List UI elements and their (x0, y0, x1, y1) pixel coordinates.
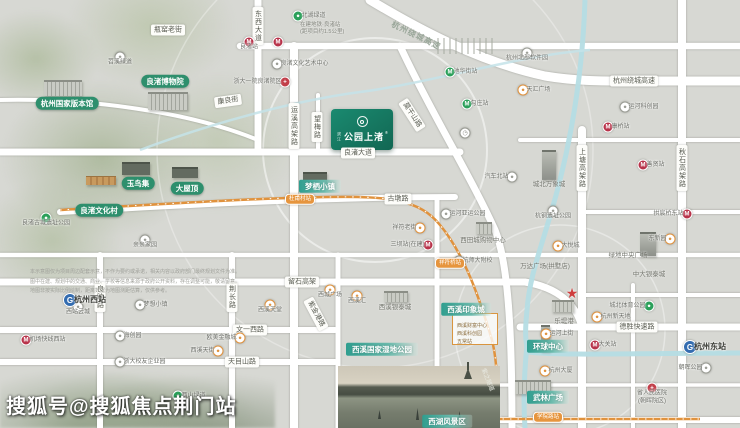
poi-label: 东新园 (648, 235, 666, 243)
poi-label: 康桥站 (612, 123, 630, 131)
poi-label: 梦想小镇 (144, 301, 168, 309)
location-map: 西溪财富中心西溪科创园五常站 滨江 公园上渚 ® 东西大道瓶窑老街康良街运溪高架… (0, 0, 740, 428)
poi-label: 西溪天堂 (258, 308, 282, 316)
road-label: 上塘高架路 (577, 145, 588, 191)
poi-label: 浙大一院良渚院区 (233, 78, 281, 86)
disclaimer-line: 本示意图仅为项目周边配套示意，不作为要约或承诺，相关内容以政府部门最终规划文件为… (30, 268, 240, 278)
pagoda-silhouette (464, 368, 472, 379)
highlight-box-row: 五常站 (457, 338, 494, 346)
poi-label: 大关站 (599, 341, 617, 349)
place-label-teal: 西湖风景区 (422, 415, 472, 428)
map-annotation: 在建地铁·良渚站(距项目约1.5公里) (300, 22, 344, 36)
tree-icon (378, 410, 381, 419)
poi-label: 良渚文化艺术中心 (281, 60, 329, 68)
hosp-icon: +省人民医院(朝晖院区) (647, 383, 658, 394)
park-icon: ●良渚古城遗址公园 (41, 213, 52, 224)
disclaimer-block: 本示意图仅为项目周边配套示意，不作为要约或承诺，相关内容以政府部门最终规划文件为… (30, 268, 240, 297)
project-logo-icon (357, 116, 368, 127)
poi-icon: ●朝晖公园 (701, 363, 712, 374)
place-label-green: 杭州国家版本馆 (36, 97, 99, 110)
place-label-green: 良渚博物院 (141, 75, 189, 88)
mall-icon: ●西溪天街 (213, 346, 224, 357)
building-illustration (86, 176, 116, 185)
building-label: 西溪银泰城 (379, 301, 412, 311)
poi-label: 汽车北站 (484, 173, 508, 181)
poi-label: 欧美金融城 (206, 334, 236, 342)
place-label-green: 大屋顶 (171, 182, 204, 195)
poi-label: 浙大校友企业园 (124, 358, 166, 366)
mall-icon: ●欧美金融城 (235, 333, 246, 344)
poi-icon: ●浙大校友企业园 (115, 357, 126, 368)
building-label: 乐堤港 (554, 315, 574, 325)
poi-label: 良渚站 (240, 45, 258, 53)
poi-icon: ●海创园 (115, 331, 126, 342)
project-logo-card: 滨江 公园上渚 ® (331, 109, 393, 150)
poi-label: 杭师大附校 (463, 257, 493, 265)
poi-label: 运河亚运公园 (450, 210, 486, 218)
stn-icon: M池华街站 (445, 67, 456, 78)
mall-icon: ●杭州大厦 (540, 366, 551, 377)
place-label-green: 玉鸟集 (122, 177, 155, 190)
place-label-green: 良渚文化村 (75, 204, 123, 217)
highlight-box-row: 西溪科创园 (457, 330, 494, 338)
poi-label: 西溪汇 (348, 299, 366, 307)
mall-icon: ●祥符老街 (415, 223, 426, 234)
mall-icon: ●运河上街 (541, 329, 552, 340)
poi-label: 西站云城 (66, 310, 90, 318)
stn-icon: M勾庄站 (462, 99, 473, 110)
building-illustration (542, 150, 556, 180)
mall-icon: ●西溪汇 (352, 291, 363, 302)
highlight-box-row: 西溪财富中心 (457, 322, 494, 330)
poi-icon: ●良渚文化艺术中心 (272, 59, 283, 70)
metro-icon: M机场快线西站 (21, 335, 32, 346)
poi-label: 三坝站(在建) (391, 241, 425, 249)
road-label: 瓶窑老街 (151, 25, 185, 36)
poi-label: 池华街站 (454, 68, 478, 76)
poi-icon: ●苕溪绿道 (115, 52, 126, 63)
poi-label: 亲亲家园 (133, 243, 157, 251)
watermark: 搜狐号@搜狐焦点荆门站 (6, 390, 237, 419)
building-illustration (552, 300, 574, 312)
poi-label: 运河科创园 (629, 103, 659, 111)
mall-icon: ●杭州新天地 (592, 312, 603, 323)
road-label: 德胜快速路 (617, 322, 658, 333)
poi-icon: ●梦想小镇 (135, 300, 146, 311)
clock-glyph: ◷ (460, 128, 471, 139)
poi-label: 省人民医院(朝晖院区) (637, 391, 667, 406)
mall-icon: ●西城广场 (325, 285, 336, 296)
disclaimer-line: 图中在建、规划中的交通、商业、学校等信息来源于政府公开资料，存在调整可能，敬请留… (30, 278, 240, 288)
mall-icon: ●东新园 (665, 234, 676, 245)
poi-label: 海创园 (124, 332, 142, 340)
metro-station-capsule: 杜甫村站 (285, 194, 315, 205)
poi-label: 机场快线西站 (30, 336, 66, 344)
mall-icon: ●天汇广场 (518, 85, 529, 96)
project-prefix: 滨江 (336, 132, 342, 142)
metro-station-capsule: 学院路站 (533, 412, 563, 423)
poi-label: 祥符老街 (392, 224, 416, 232)
poi-label: 杭州新天地 (601, 313, 631, 321)
building-label: 中大银泰城 (633, 268, 666, 278)
poi-label: 朝晖公园 (678, 364, 702, 372)
mall-icon: ●大悦城 (553, 241, 564, 252)
place-label-teal: 武林广场 (527, 391, 569, 404)
metro-icon: M拱宸桥东站 (682, 209, 693, 220)
poi-label: 苕溪绿道 (108, 60, 132, 68)
road-label: 古墩路 (385, 194, 412, 205)
poi-label: 杭州北部软件园 (506, 56, 548, 64)
building-illustration (172, 167, 198, 178)
poi-label: 拱宸桥东站 (653, 210, 683, 218)
rail-icon: G杭州东站 (683, 340, 697, 354)
poi-icon: ●汽车北站 (507, 172, 518, 183)
road-label: 秋石高架路 (677, 145, 688, 191)
project-reg-mark: ® (385, 130, 388, 135)
building-label: 城北万象城 (533, 178, 566, 188)
building-illustration (122, 162, 150, 175)
poi-label: 善贤站 (647, 161, 665, 169)
poi-label: 西溪天街 (190, 347, 214, 355)
hosp-icon: +浙大一院良渚院区 (280, 77, 291, 88)
metro-icon: M (273, 37, 284, 48)
building-label: 西田城购物中心 (460, 234, 506, 244)
poi-label: 杭州西站 (74, 295, 106, 305)
west-lake-photo (338, 366, 500, 428)
road-label: 天目山路 (225, 357, 259, 368)
place-label-teal: 西溪印象城 (441, 303, 491, 316)
disclaimer-line: 地图非按实际比例绘制，距离数据为地图测距估算，仅供参考。 (30, 287, 240, 297)
building-label: 绿地中央广场 (609, 249, 648, 259)
poi-label: 大悦城 (562, 242, 580, 250)
place-label-teal: 梦栖小镇 (299, 180, 341, 193)
building-illustration (476, 222, 492, 234)
metro-icon: M善贤站 (638, 160, 649, 171)
road-label: 运溪高架路 (289, 103, 300, 149)
metro-icon: M大关站 (590, 340, 601, 351)
highlight-box: 西溪财富中心西溪科创园五常站 (452, 313, 498, 345)
poi-label: 天汇广场 (527, 86, 551, 94)
building-label: 万达广场(拱墅店) (520, 260, 570, 270)
poi-label: 良渚古城遗址公园 (22, 221, 70, 229)
poi-icon: ●杭钢遗址公园 (548, 206, 559, 217)
road-label: 留石高架 (285, 277, 319, 288)
poi-label: 勾庄站 (471, 100, 489, 108)
road-label: 杭州绕城高速 (610, 76, 658, 87)
poi-label: 城北体育公园 (609, 302, 645, 310)
poi-icon: ●运河亚运公园 (441, 209, 452, 220)
poi-label: 西城广场 (318, 293, 342, 301)
poi-label: 北湖绿道 (302, 12, 326, 20)
project-name: 公园上渚 (344, 130, 384, 143)
metro-glyph: M (273, 37, 284, 48)
poi-icon: ●杭州北部软件园 (522, 48, 533, 59)
tree-icon (416, 408, 419, 420)
metro-icon: M三坝站(在建) (423, 240, 434, 251)
building-illustration (437, 38, 495, 54)
metro-icon: M康桥站 (603, 122, 614, 133)
metro-station-capsule: 祥符桥站 (435, 258, 465, 269)
poi-label: 杭钢遗址公园 (535, 214, 571, 222)
park-icon: ●北湖绿道 (293, 11, 304, 22)
place-label-teal: 西溪国家湿地公园 (346, 343, 418, 356)
building-illustration (148, 92, 188, 110)
park-icon: ●城北体育公园 (644, 301, 655, 312)
place-label-teal: 环球中心 (527, 340, 569, 353)
poi-label: 杭州大厦 (549, 367, 573, 375)
clock-icon: ◷ (460, 128, 471, 139)
poi-icon: ●运河科创园 (620, 102, 631, 113)
poi-label: 运河上街 (550, 330, 574, 338)
road-label: 良渚大道 (341, 148, 375, 159)
poi-label: 杭州东站 (694, 342, 726, 352)
mall-icon: ●西溪天堂 (265, 300, 276, 311)
metro-icon: M良渚站 (244, 37, 255, 48)
road-label: 望梅路 (312, 112, 323, 142)
poi-icon: ●亲亲家园 (140, 235, 151, 246)
building-illustration (44, 80, 82, 96)
star-marker: ★ (566, 286, 579, 300)
